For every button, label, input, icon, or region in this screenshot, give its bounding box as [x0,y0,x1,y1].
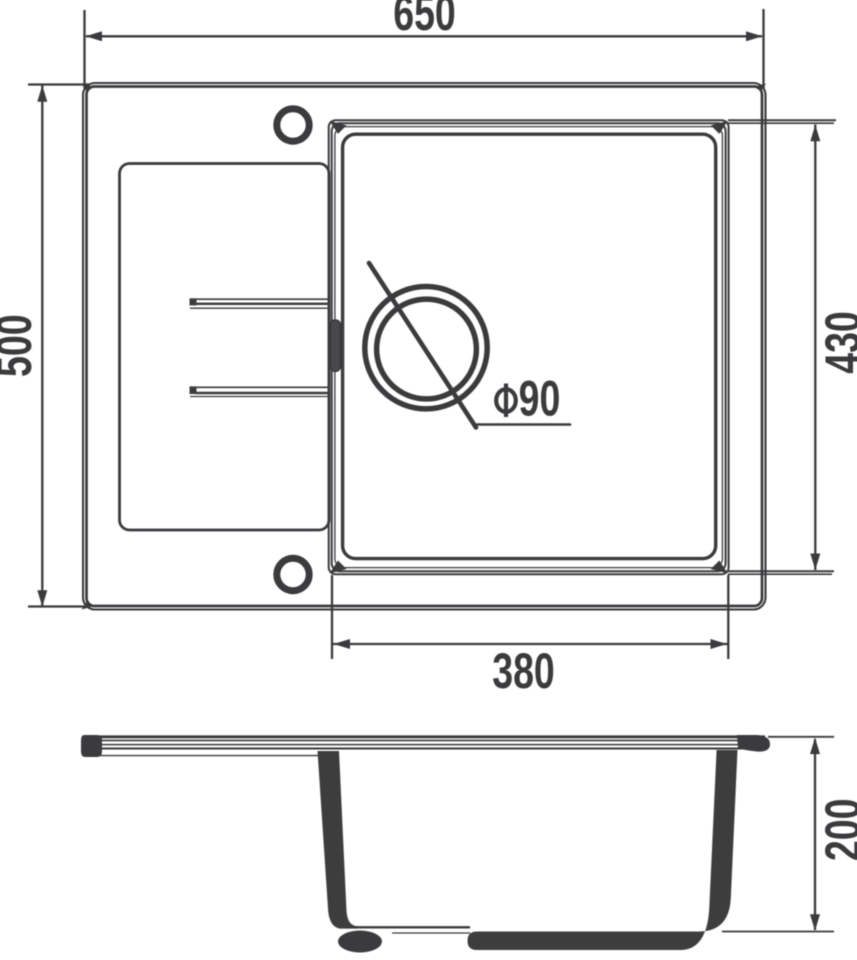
svg-text:380: 380 [492,644,555,699]
svg-text:90: 90 [519,371,561,426]
svg-text:650: 650 [393,0,456,41]
svg-text:500: 500 [0,314,42,377]
svg-text:200: 200 [816,799,857,862]
svg-text:430: 430 [816,311,857,374]
